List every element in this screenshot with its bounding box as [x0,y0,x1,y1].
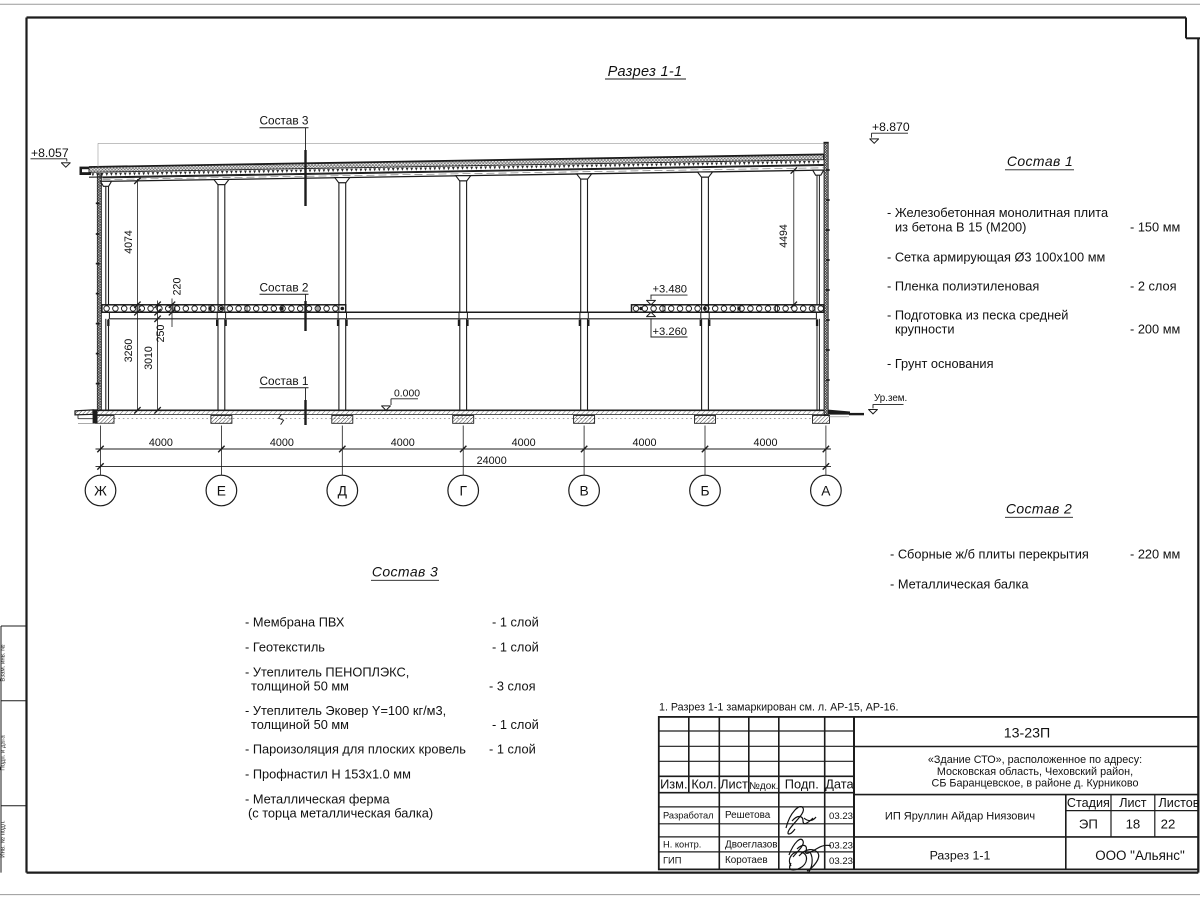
svg-text:- 3 слоя: - 3 слоя [489,679,536,694]
svg-text:Изм.: Изм. [660,777,687,792]
svg-text:крупности: крупности [895,322,955,337]
svg-text:13-23П: 13-23П [1004,726,1050,742]
svg-text:22: 22 [1161,817,1176,832]
svg-text:- Геотекстиль: - Геотекстиль [245,640,325,655]
svg-text:Коротаев: Коротаев [725,855,768,866]
svg-text:- Металлическая балка: - Металлическая балка [890,577,1029,592]
svg-text:4000: 4000 [391,437,415,449]
svg-text:03.23: 03.23 [829,811,853,822]
svg-text:03.23: 03.23 [829,856,853,867]
svg-text:Состав 1: Состав 1 [260,374,309,388]
svg-text:Решетова: Решетова [725,810,771,821]
svg-text:- Пленка полиэтиленовая: - Пленка полиэтиленовая [887,279,1039,294]
svg-text:- 1 слой: - 1 слой [489,742,536,757]
svg-text:1. Разрез 1-1 замаркирован см.: 1. Разрез 1-1 замаркирован см. л. АР-15,… [659,702,898,714]
svg-text:+8.870: +8.870 [872,120,910,134]
svg-text:Разрез 1-1: Разрез 1-1 [608,64,683,80]
svg-text:+8.057: +8.057 [31,146,69,160]
svg-text:24000: 24000 [477,455,507,467]
svg-text:- Утеплитель ПЕНОПЛЭКС,: - Утеплитель ПЕНОПЛЭКС, [245,665,409,680]
svg-text:А: А [821,483,831,498]
svg-text:- 150 мм: - 150 мм [1130,220,1180,235]
svg-text:Подп.: Подп. [785,777,819,792]
svg-text:Стадия: Стадия [1067,796,1110,810]
svg-text:СБ Баранцевское, в районе д. К: СБ Баранцевское, в районе д. Курниково [932,778,1139,790]
svg-text:0.000: 0.000 [394,388,420,399]
svg-text:Московская область, Чеховский: Московская область, Чеховский район, [937,766,1133,778]
svg-text:- 1 слой: - 1 слой [492,717,539,732]
svg-text:№док.: №док. [749,781,778,792]
svg-text:Состав 2: Состав 2 [1006,501,1072,517]
svg-text:Д: Д [338,483,348,498]
svg-text:- Подготовка из песка средней: - Подготовка из песка средней [887,308,1068,323]
svg-text:4000: 4000 [753,437,777,449]
svg-text:Состав 3: Состав 3 [372,564,438,580]
svg-text:Разработал: Разработал [663,811,714,821]
svg-text:18: 18 [1126,817,1141,832]
svg-text:Ж: Ж [94,483,107,498]
svg-text:Кол.: Кол. [691,777,716,792]
svg-text:- Железобетонная монолитная п: - Железобетонная монолитная плита [887,205,1109,220]
svg-text:Н. контр.: Н. контр. [663,840,701,850]
svg-text:- Пароизоляция для плоских кро: - Пароизоляция для плоских кровель [245,742,466,757]
svg-text:В: В [579,483,588,498]
svg-text:4494: 4494 [778,224,790,248]
svg-text:4000: 4000 [512,437,536,449]
svg-text:Двоеглазов: Двоеглазов [725,840,778,851]
svg-text:«Здание СТО», расположенное по: «Здание СТО», расположенное по адресу: [928,754,1142,766]
svg-text:- Профнастил Н 153х1.0 мм: - Профнастил Н 153х1.0 мм [245,767,411,782]
svg-text:4074: 4074 [123,230,135,254]
svg-text:Состав 2: Состав 2 [260,280,309,294]
svg-text:Б: Б [700,483,709,498]
svg-text:+3.260: +3.260 [653,326,688,338]
svg-text:- 200 мм: - 200 мм [1130,322,1180,337]
svg-text:3010: 3010 [143,346,155,370]
svg-text:Инв. № подл.: Инв. № подл. [0,820,7,858]
svg-text:4000: 4000 [632,437,656,449]
svg-text:220: 220 [172,278,184,296]
svg-text:+3.480: +3.480 [653,283,688,295]
svg-text:из бетона В 15 (М200): из бетона В 15 (М200) [895,220,1026,235]
svg-text:4000: 4000 [149,437,173,449]
svg-text:- Утеплитель Эковер Y=100 кг/м: - Утеплитель Эковер Y=100 кг/м3, [245,703,446,718]
svg-text:- Грунт основания: - Грунт основания [887,356,994,371]
svg-text:- Сетка армирующая Ø3 100х100: - Сетка армирующая Ø3 100х100 мм [887,250,1105,265]
svg-text:- 1 слой: - 1 слой [492,615,539,630]
svg-text:(с торца металлическая балка): (с торца металлическая балка) [248,806,433,821]
svg-text:ООО "Альянс": ООО "Альянс" [1095,848,1185,863]
svg-text:толщиной 50 мм: толщиной 50 мм [251,717,349,732]
svg-text:Дата: Дата [825,777,854,792]
svg-text:- 2 слоя: - 2 слоя [1130,279,1177,294]
svg-text:Е: Е [217,483,226,498]
svg-text:- 220 мм: - 220 мм [1130,547,1180,562]
svg-text:- Мембрана ПВХ: - Мембрана ПВХ [245,615,345,630]
svg-text:ИП Яруллин Айдар Ниязович: ИП Яруллин Айдар Ниязович [885,811,1035,823]
svg-text:Листов: Листов [1159,796,1200,810]
svg-text:Взам. инв. №: Взам. инв. № [0,644,7,681]
svg-text:Лист: Лист [720,777,748,792]
svg-text:- Металлическая ферма: - Металлическая ферма [245,792,390,807]
svg-text:03.23: 03.23 [829,841,853,852]
svg-text:Г: Г [459,483,467,498]
svg-text:- Сборные ж/б плиты перекрытия: - Сборные ж/б плиты перекрытия [890,547,1089,562]
svg-text:Состав 3: Состав 3 [260,114,309,128]
svg-text:ГИП: ГИП [663,856,681,866]
svg-text:Разрез 1-1: Разрез 1-1 [930,849,991,863]
svg-text:Подп. и дата: Подп. и дата [1,735,7,771]
svg-text:4000: 4000 [270,437,294,449]
svg-text:3260: 3260 [123,339,135,363]
svg-text:толщиной 50 мм: толщиной 50 мм [251,679,349,694]
svg-text:- 1 слой: - 1 слой [492,640,539,655]
svg-text:Ур.зем.: Ур.зем. [874,393,907,404]
svg-text:Состав 1: Состав 1 [1007,153,1073,169]
svg-text:ЭП: ЭП [1079,817,1098,832]
svg-text:250: 250 [155,325,167,343]
svg-text:Лист: Лист [1119,796,1147,810]
